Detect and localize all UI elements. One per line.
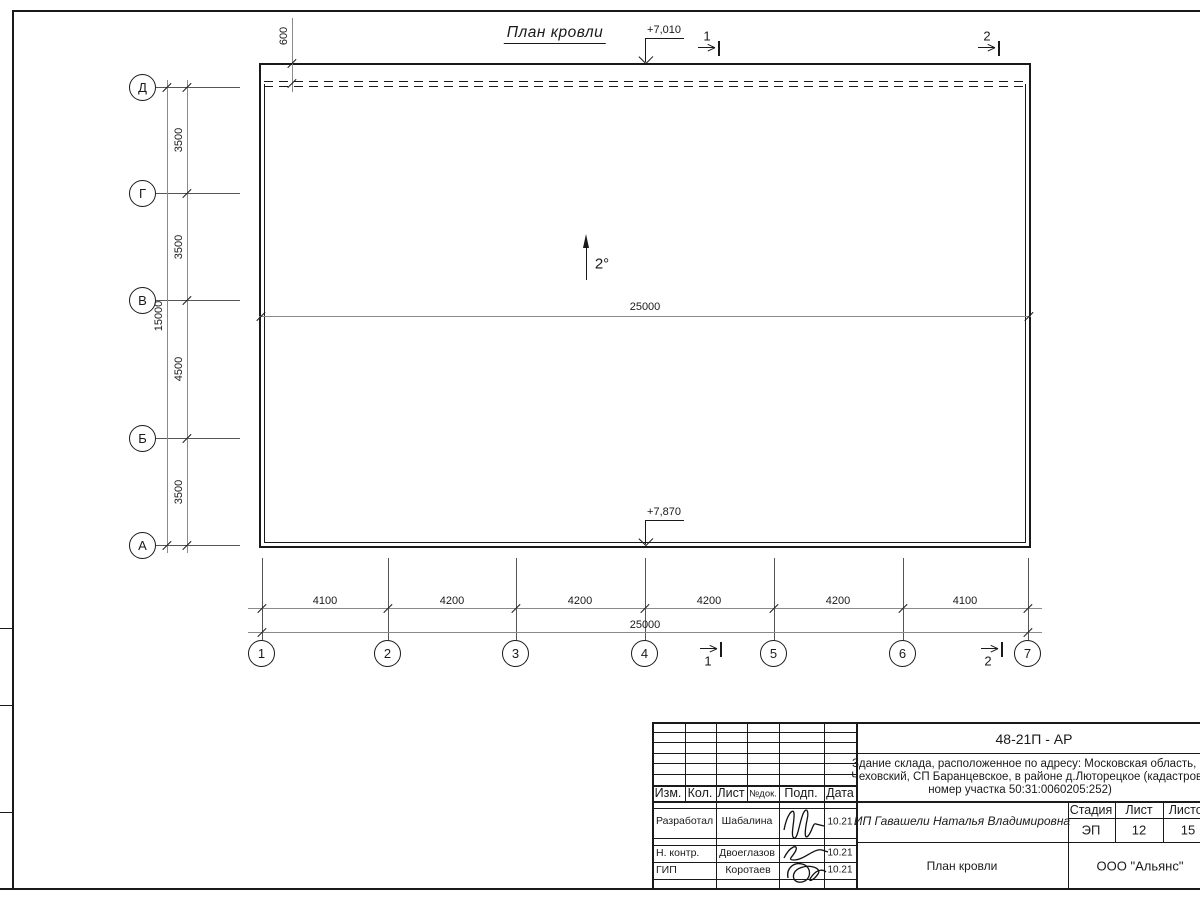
vertical-dim-label: 4500 — [173, 357, 185, 381]
axis-extension-line — [262, 558, 263, 640]
section-mark-1-bar — [718, 41, 720, 56]
titleblock-line — [652, 774, 856, 775]
tb-doc-number: 48-21П - АР — [996, 731, 1073, 747]
section-mark-2-bar — [998, 41, 1000, 56]
elevation-top-leader — [645, 38, 684, 39]
frame-bottom — [0, 888, 1200, 890]
slope-arrow-shaft — [586, 246, 587, 280]
vertical-total-dim-label: 15000 — [153, 301, 165, 332]
frame-top — [12, 10, 1200, 12]
section-mark-1-label: 1 — [704, 654, 711, 669]
frame-edge-tick — [0, 628, 12, 629]
titleblock-line — [652, 753, 1200, 754]
horizontal-dim-label: 4200 — [568, 595, 592, 607]
frame-edge-tick — [0, 705, 12, 706]
tb-stage-label: Стадия — [1070, 803, 1113, 817]
titleblock-line — [1163, 801, 1164, 842]
titleblock-border — [652, 722, 1200, 724]
tb-date: 10.21 — [827, 865, 852, 876]
drawing-sheet: План кровли 25000 2° +7,010 +7,870 600 1… — [0, 0, 1200, 900]
tb-name: Коротаев — [725, 864, 770, 876]
tb-description-line2: Чеховский, СП Баранцевское, в районе д.Л… — [851, 771, 1200, 783]
axis-extension-line — [516, 558, 517, 640]
horizontal-dim-label: 4100 — [313, 595, 337, 607]
dimension-line-vertical-segments — [187, 80, 188, 553]
frame-edge-tick — [0, 812, 12, 813]
drawing-title: План кровли — [504, 24, 606, 42]
ridge-dim-label: 25000 — [630, 301, 661, 313]
tb-date: 10.21 — [827, 848, 852, 859]
titleblock-line — [652, 801, 1200, 803]
hidden-wall-dashed-line — [264, 86, 1025, 87]
elevation-bottom-label: +7,870 — [647, 506, 681, 518]
vertical-dim-label: 3500 — [173, 480, 185, 504]
axis-extension-line — [903, 558, 904, 640]
signature-shabalina — [780, 804, 826, 844]
titleblock-line — [1115, 801, 1116, 842]
tb-sheets-label: Листов — [1169, 803, 1200, 817]
horizontal-dim-label: 4200 — [697, 595, 721, 607]
signature-dvoeglazov-korotaev — [778, 840, 830, 890]
horizontal-dim-label: 4200 — [826, 595, 850, 607]
axis-circle-a: А — [129, 532, 156, 559]
titleblock-line — [652, 732, 856, 733]
titleblock-line — [747, 722, 748, 801]
section-mark-2-label: 2 — [983, 29, 990, 44]
titleblock-line — [685, 722, 686, 801]
axis-extension-line — [1028, 558, 1029, 640]
axis-circle-4: 4 — [631, 640, 658, 667]
elevation-top-drop — [645, 38, 646, 62]
elevation-top-label: +7,010 — [647, 24, 681, 36]
tb-role: Н. контр. — [656, 847, 699, 859]
axis-line — [156, 300, 240, 301]
wall-line-right — [1025, 84, 1026, 543]
axis-circle-d: Д — [129, 74, 156, 101]
tb-stage-value: ЭП — [1082, 823, 1101, 838]
axis-extension-line — [388, 558, 389, 640]
section-mark-1-label: 1 — [703, 29, 710, 44]
horizontal-dim-label: 4100 — [953, 595, 977, 607]
axis-circle-v: В — [129, 287, 156, 314]
tb-header-list: Лист — [717, 786, 744, 800]
tb-sheet-label: Лист — [1125, 803, 1152, 817]
tb-client: ИП Гавашели Наталья Владимировна — [854, 814, 1070, 828]
axis-line — [156, 87, 240, 88]
tb-header-data: Дата — [826, 786, 854, 800]
titleblock-divider — [856, 722, 858, 889]
tb-header-izm: Изм. — [655, 786, 682, 800]
axis-circle-2: 2 — [374, 640, 401, 667]
tb-header-ndok: №док. — [749, 789, 777, 800]
slope-label: 2° — [595, 256, 609, 273]
tb-role: Разработал — [656, 815, 713, 827]
axis-extension-line — [774, 558, 775, 640]
slope-arrow-head — [583, 234, 589, 248]
section-mark-1-bar — [720, 642, 722, 657]
tb-header-podp: Подп. — [784, 786, 817, 800]
tb-name: Шабалина — [722, 815, 773, 827]
tb-role: ГИП — [656, 864, 677, 876]
frame-left — [12, 10, 14, 889]
horizontal-total-dim-label: 25000 — [630, 619, 661, 631]
tb-header-kol: Кол. — [688, 786, 713, 800]
tb-date: 10.21 — [827, 817, 852, 828]
titleblock-line — [716, 722, 717, 889]
axis-line — [156, 193, 240, 194]
titleblock-line — [652, 763, 856, 764]
axis-line — [156, 545, 240, 546]
dimension-line-vertical-total — [167, 80, 168, 553]
tb-sheet-title: План кровли — [927, 859, 998, 873]
section-mark-2-label: 2 — [984, 654, 991, 669]
drawing-title-text: План кровли — [504, 24, 606, 44]
titleblock-line — [856, 842, 1200, 843]
dimension-line-horizontal-total — [248, 632, 1042, 633]
tb-sheets-value: 15 — [1181, 823, 1195, 838]
tb-description-line3: номер участка 50:31:0060205:252) — [928, 784, 1112, 796]
axis-circle-b: Б — [129, 425, 156, 452]
horizontal-dim-label: 4200 — [440, 595, 464, 607]
axis-circle-7: 7 — [1014, 640, 1041, 667]
axis-circle-3: 3 — [502, 640, 529, 667]
vertical-dim-label: 3500 — [173, 235, 185, 259]
elevation-bottom-leader — [645, 520, 684, 521]
section-mark-2-bar — [1001, 642, 1003, 657]
elevation-bottom-drop — [645, 520, 646, 544]
tb-description-line1: Здание склада, расположенное по адресу: … — [852, 758, 1200, 770]
overhang-dim-label: 600 — [278, 27, 290, 45]
hidden-wall-dashed-line — [264, 81, 1025, 82]
axis-line — [156, 438, 240, 439]
tb-sheet-value: 12 — [1132, 823, 1146, 838]
titleblock-line — [652, 742, 856, 743]
axis-circle-5: 5 — [760, 640, 787, 667]
titleblock-border — [652, 722, 654, 889]
ridge-dimension-line — [259, 316, 1031, 317]
tb-company: ООО "Альянс" — [1097, 859, 1184, 874]
vertical-dim-label: 3500 — [173, 128, 185, 152]
titleblock-line — [1068, 818, 1200, 819]
axis-circle-6: 6 — [889, 640, 916, 667]
tb-name: Двоеглазов — [719, 847, 775, 859]
axis-circle-g: Г — [129, 180, 156, 207]
axis-circle-1: 1 — [248, 640, 275, 667]
